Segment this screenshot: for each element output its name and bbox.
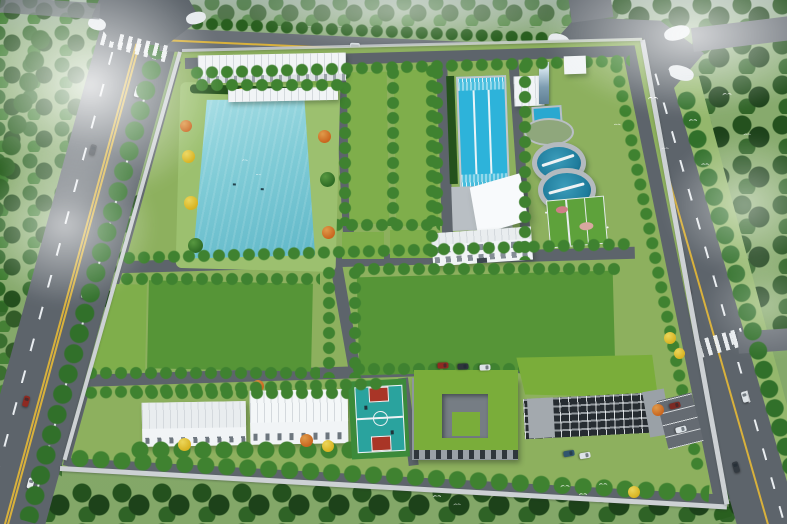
car-white-parked-2	[579, 452, 591, 460]
car-red-1	[22, 395, 31, 407]
basin-lane-line-2	[488, 78, 493, 186]
aerial-site-rendering	[0, 0, 787, 524]
pond-bird-2	[256, 173, 262, 176]
court-player-1	[364, 406, 367, 410]
pond-bird-1	[242, 159, 248, 162]
lawn-west	[147, 280, 313, 371]
basin-weir-top	[458, 77, 504, 91]
pond-tree-green-1	[320, 172, 335, 187]
pond-duck-1	[233, 183, 236, 185]
pond-tree-orange-3	[322, 226, 335, 239]
dove-3	[599, 482, 608, 487]
dove-1	[561, 484, 571, 489]
mist-right-low	[700, 250, 787, 360]
sw-tree-yellow-1	[178, 438, 191, 451]
car-white-parked-3	[479, 364, 490, 370]
bird-7	[614, 123, 621, 127]
tree-row-strip-b	[386, 66, 400, 226]
lawn-east-trees-top	[352, 262, 620, 276]
car-dark-3	[732, 461, 741, 473]
sw-tree-orange-1	[300, 434, 313, 447]
dove-2	[579, 493, 588, 498]
lawn-mid-trees-east	[348, 266, 362, 378]
clarifier-2-bridge	[548, 182, 585, 194]
court-center-circle	[373, 411, 389, 427]
verge-tree-yellow-2	[674, 348, 685, 359]
basketball-court	[354, 385, 405, 453]
clarifier-1-bridge	[541, 154, 574, 167]
verge-tree-orange-1	[652, 404, 664, 416]
basin-road-trees	[425, 64, 439, 259]
lawn-mid-trees-west	[322, 266, 336, 378]
dove-5	[454, 503, 462, 507]
mist-left-mid	[0, 140, 160, 310]
basin-lane-line-1	[472, 78, 477, 186]
verge-tree-yellow-3	[628, 486, 640, 498]
garden-court-flowers-2	[579, 222, 594, 231]
car-red-parked	[437, 362, 448, 368]
court-player-2	[391, 430, 394, 434]
sw-tree-yellow-2	[322, 440, 334, 452]
treatment-basin	[456, 75, 510, 189]
lawn-strip-1	[347, 72, 390, 225]
pond-duck-2	[261, 188, 264, 190]
east-building-terrace	[527, 397, 555, 438]
dove-4	[433, 495, 442, 500]
clarifier-road-trees	[518, 60, 532, 260]
garden-court-lamp-1	[545, 212, 547, 214]
lawn-west-trees-bottom	[84, 366, 320, 380]
greenroof-courtyard-block	[452, 412, 480, 436]
sw-west-roof	[142, 401, 246, 429]
car-blue-parked	[563, 450, 575, 458]
pond-tree-orange-2	[318, 130, 331, 143]
greenroof-colonnade	[414, 450, 518, 459]
garden-court-lamp-2	[606, 226, 608, 228]
verge-tree-yellow-1	[664, 332, 676, 344]
car-dark-parked	[457, 363, 468, 369]
mist-top-center	[240, 0, 560, 50]
court-key-bottom	[371, 435, 392, 451]
mist-top-right	[540, 0, 787, 120]
